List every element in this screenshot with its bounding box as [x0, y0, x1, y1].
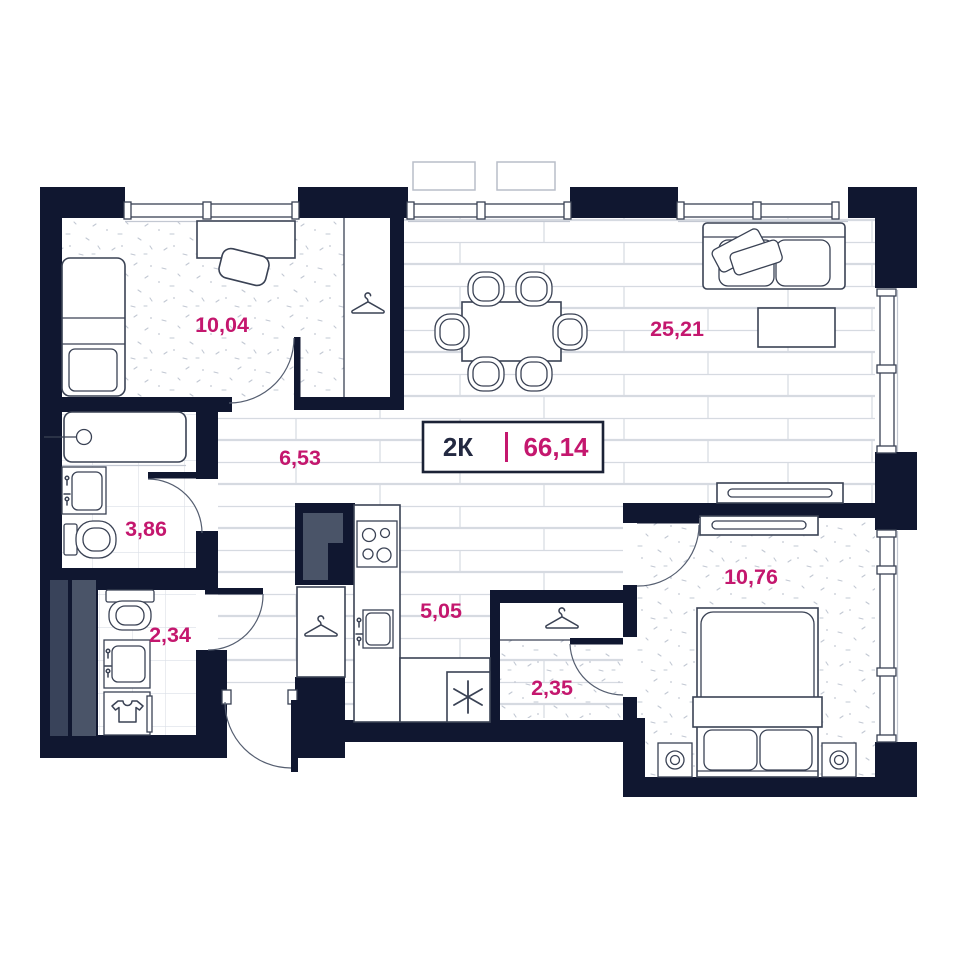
toilet-tank	[64, 524, 77, 555]
dining-chair	[516, 272, 552, 306]
plan-total-area: 66,14	[523, 432, 589, 462]
coffee-table	[758, 308, 835, 347]
plan-type-label: 2К	[443, 432, 473, 462]
shaft	[72, 580, 96, 736]
window	[877, 289, 898, 453]
toilet-bowl	[116, 606, 144, 625]
sofa-cushion	[776, 240, 830, 286]
room-area-label: 2,34	[149, 623, 191, 647]
closet-area	[344, 218, 390, 397]
room-area-label: 5,05	[420, 599, 462, 623]
dining-chair	[435, 314, 469, 350]
room-area-label: 10,76	[724, 565, 778, 589]
toilet-room-fixtures	[104, 590, 154, 735]
title-divider	[505, 432, 508, 462]
hall-closet	[297, 587, 345, 677]
sink	[72, 472, 102, 510]
nightstand	[658, 743, 692, 777]
toilet-tank	[106, 590, 154, 602]
door-leaf	[148, 472, 203, 479]
bathtub-drain	[77, 430, 92, 445]
door-leaf	[637, 517, 699, 524]
dining-chair	[553, 314, 587, 350]
floor-plan-drawing: 10,04 25,21 6,53 3,86 2,34 5,05 2,35 10,…	[0, 0, 960, 960]
console-table	[717, 483, 843, 503]
dining-chair	[468, 357, 504, 391]
nightstand	[822, 743, 856, 777]
room-area-label: 10,04	[195, 313, 249, 337]
stove	[357, 521, 397, 567]
floor-plan: 10,04 25,21 6,53 3,86 2,34 5,05 2,35 10,…	[0, 0, 960, 960]
balcony-outline	[497, 162, 555, 190]
shaft	[50, 580, 68, 736]
room-area-label: 6,53	[279, 446, 321, 470]
pillow	[760, 730, 812, 770]
pillow	[704, 730, 757, 770]
dining-chair	[468, 272, 504, 306]
room-area-label: 25,21	[650, 317, 704, 341]
washing-machine	[104, 692, 150, 735]
bed-headboard	[693, 697, 822, 727]
room-area-label: 2,35	[531, 676, 573, 700]
bed-blanket	[69, 349, 117, 391]
room-area-label: 3,86	[125, 517, 167, 541]
bed-duvet	[701, 612, 814, 697]
kitchen-sink	[366, 613, 390, 645]
plan-title-box: 2К 66,14	[423, 422, 603, 472]
door-leaf	[205, 588, 263, 595]
dresser	[700, 516, 818, 535]
sink	[112, 646, 145, 682]
toilet-bowl	[83, 528, 110, 551]
door-leaf	[570, 638, 623, 645]
sofa	[703, 223, 845, 289]
door-leaf	[294, 337, 301, 403]
balcony-outline	[413, 162, 475, 190]
entry-opening	[227, 690, 291, 758]
dining-chair	[516, 357, 552, 391]
door-leaf	[291, 700, 298, 772]
door-jamb	[222, 690, 231, 704]
dining-table	[462, 302, 561, 361]
window	[877, 530, 898, 742]
